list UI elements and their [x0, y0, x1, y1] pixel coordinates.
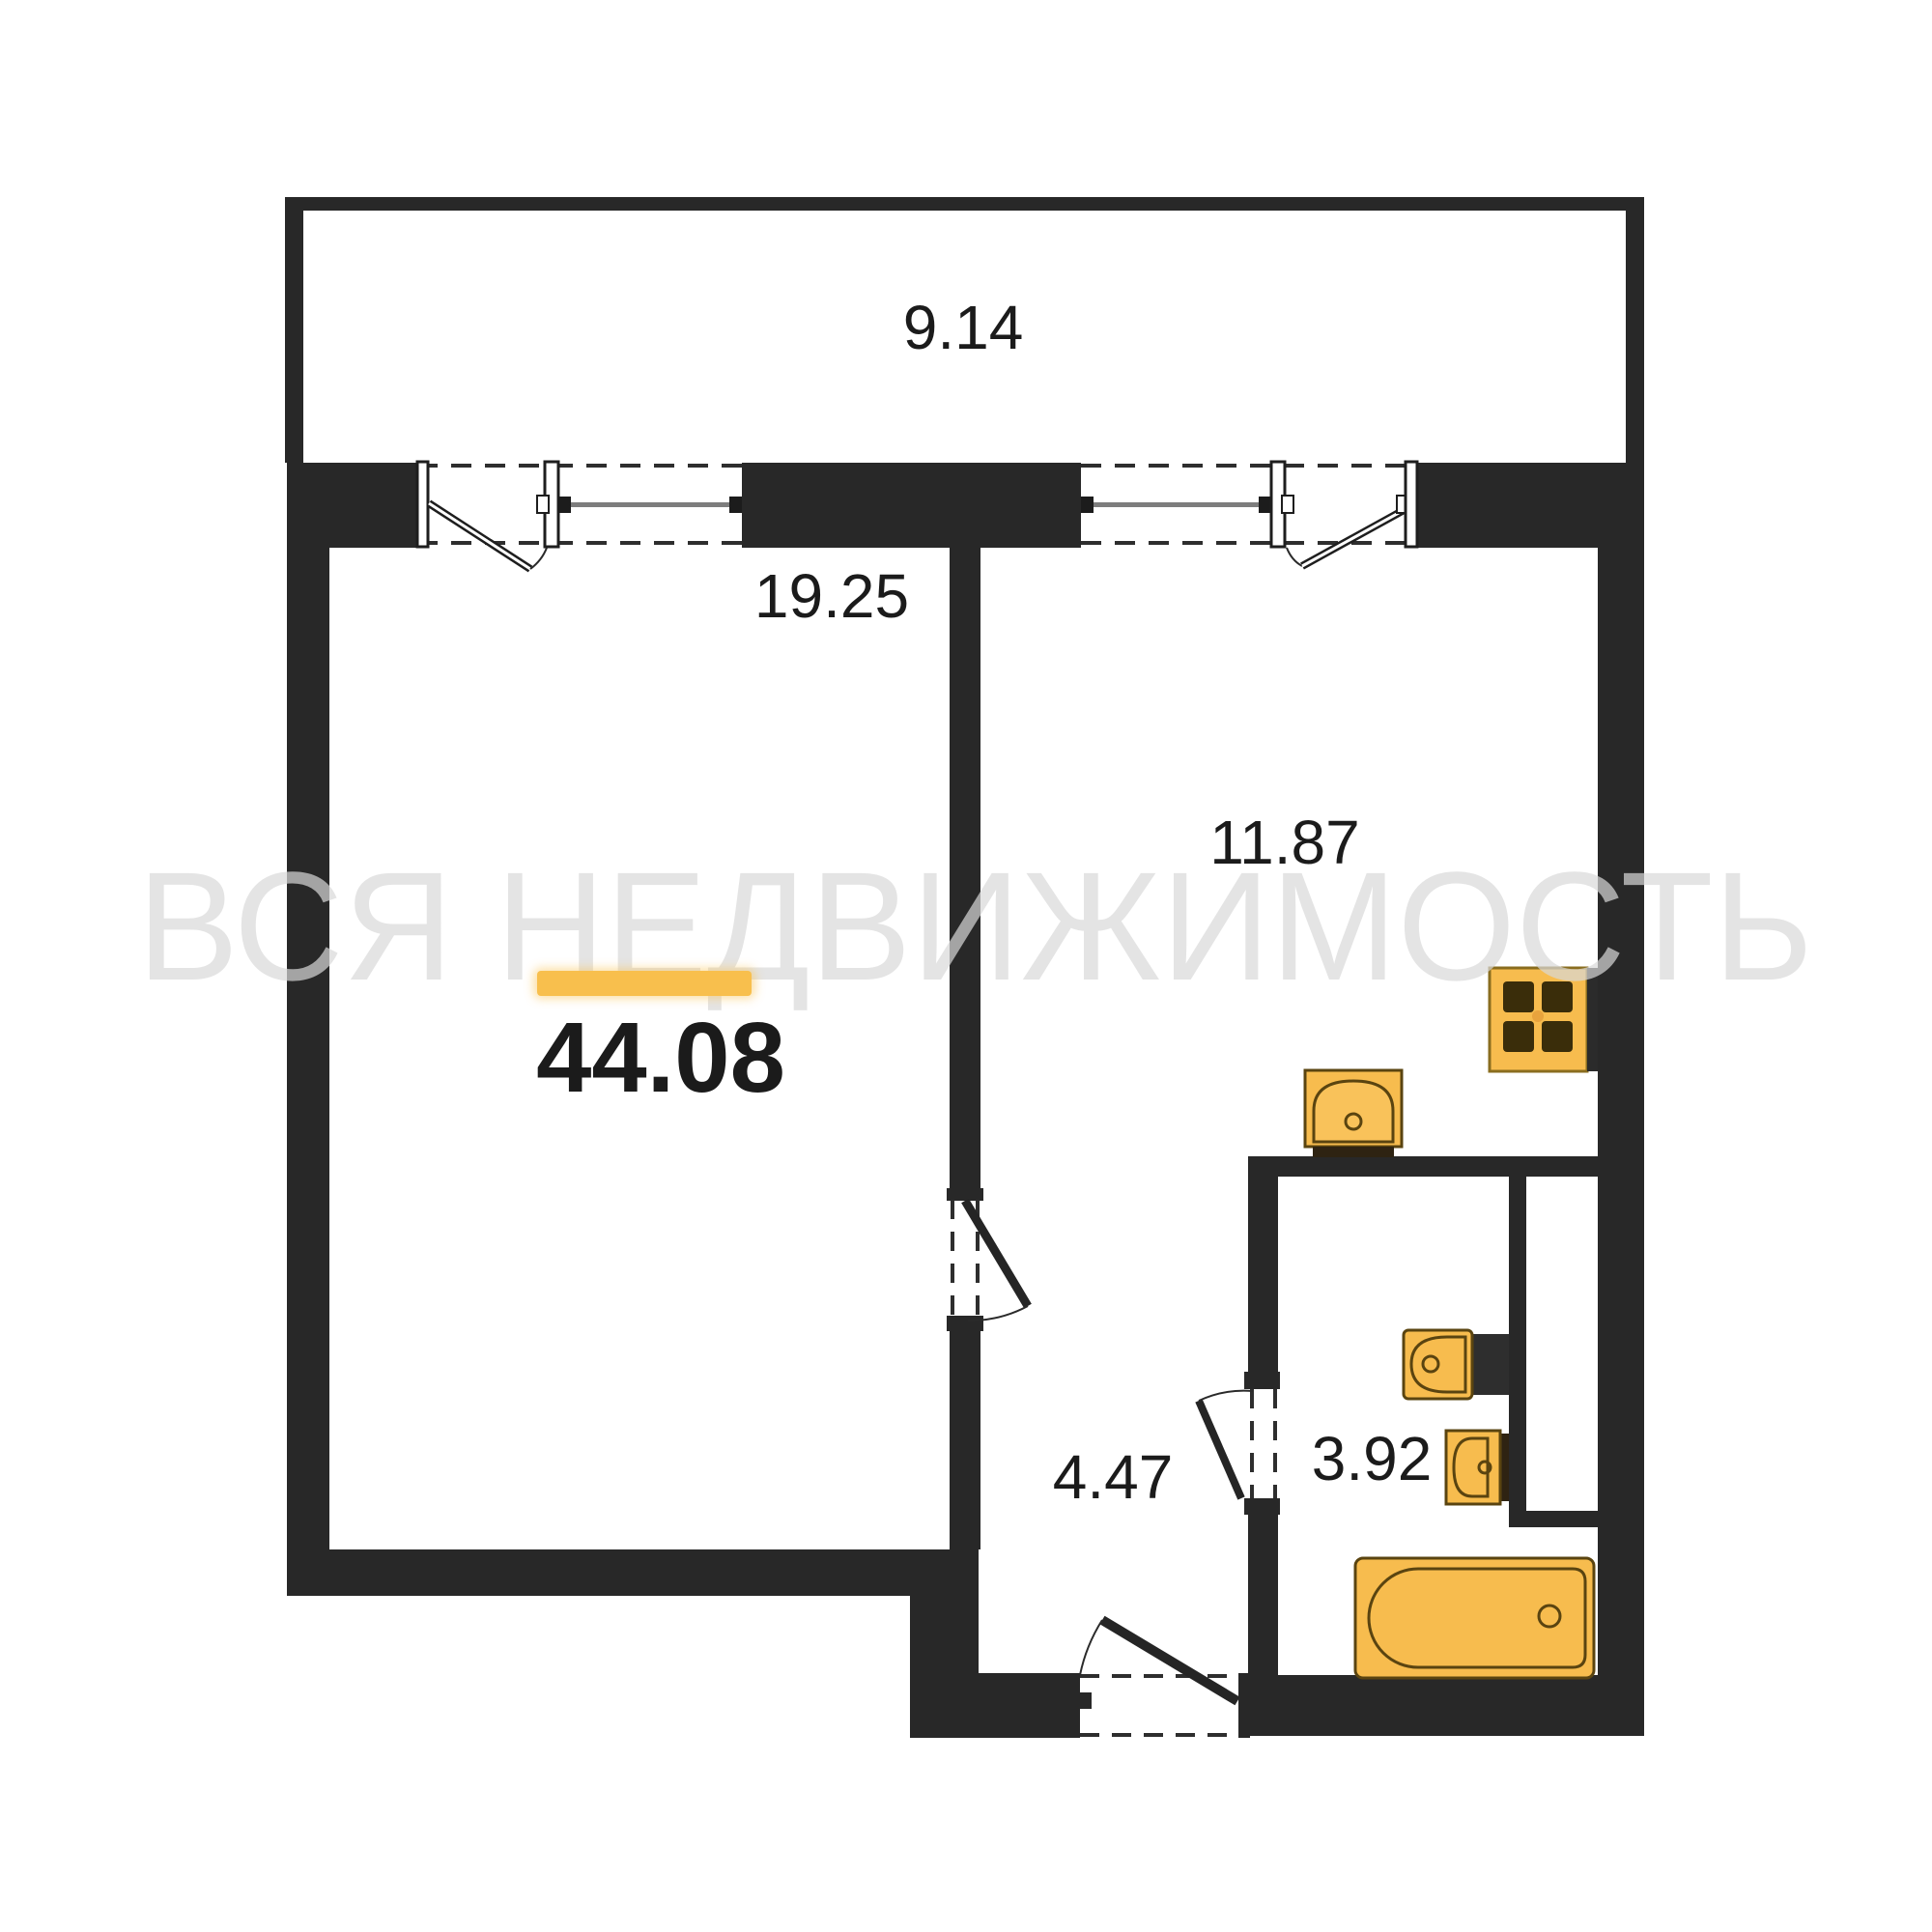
svg-text:9.14: 9.14 — [903, 293, 1024, 362]
svg-text:3.92: 3.92 — [1312, 1424, 1433, 1493]
svg-text:4.47: 4.47 — [1053, 1442, 1174, 1512]
svg-text:ВСЯ НЕДВИЖИМОСТЬ: ВСЯ НЕДВИЖИМОСТЬ — [137, 839, 1813, 1012]
svg-text:44.08: 44.08 — [536, 1002, 785, 1113]
svg-text:19.25: 19.25 — [754, 561, 909, 631]
svg-text:11.87: 11.87 — [1209, 808, 1359, 877]
